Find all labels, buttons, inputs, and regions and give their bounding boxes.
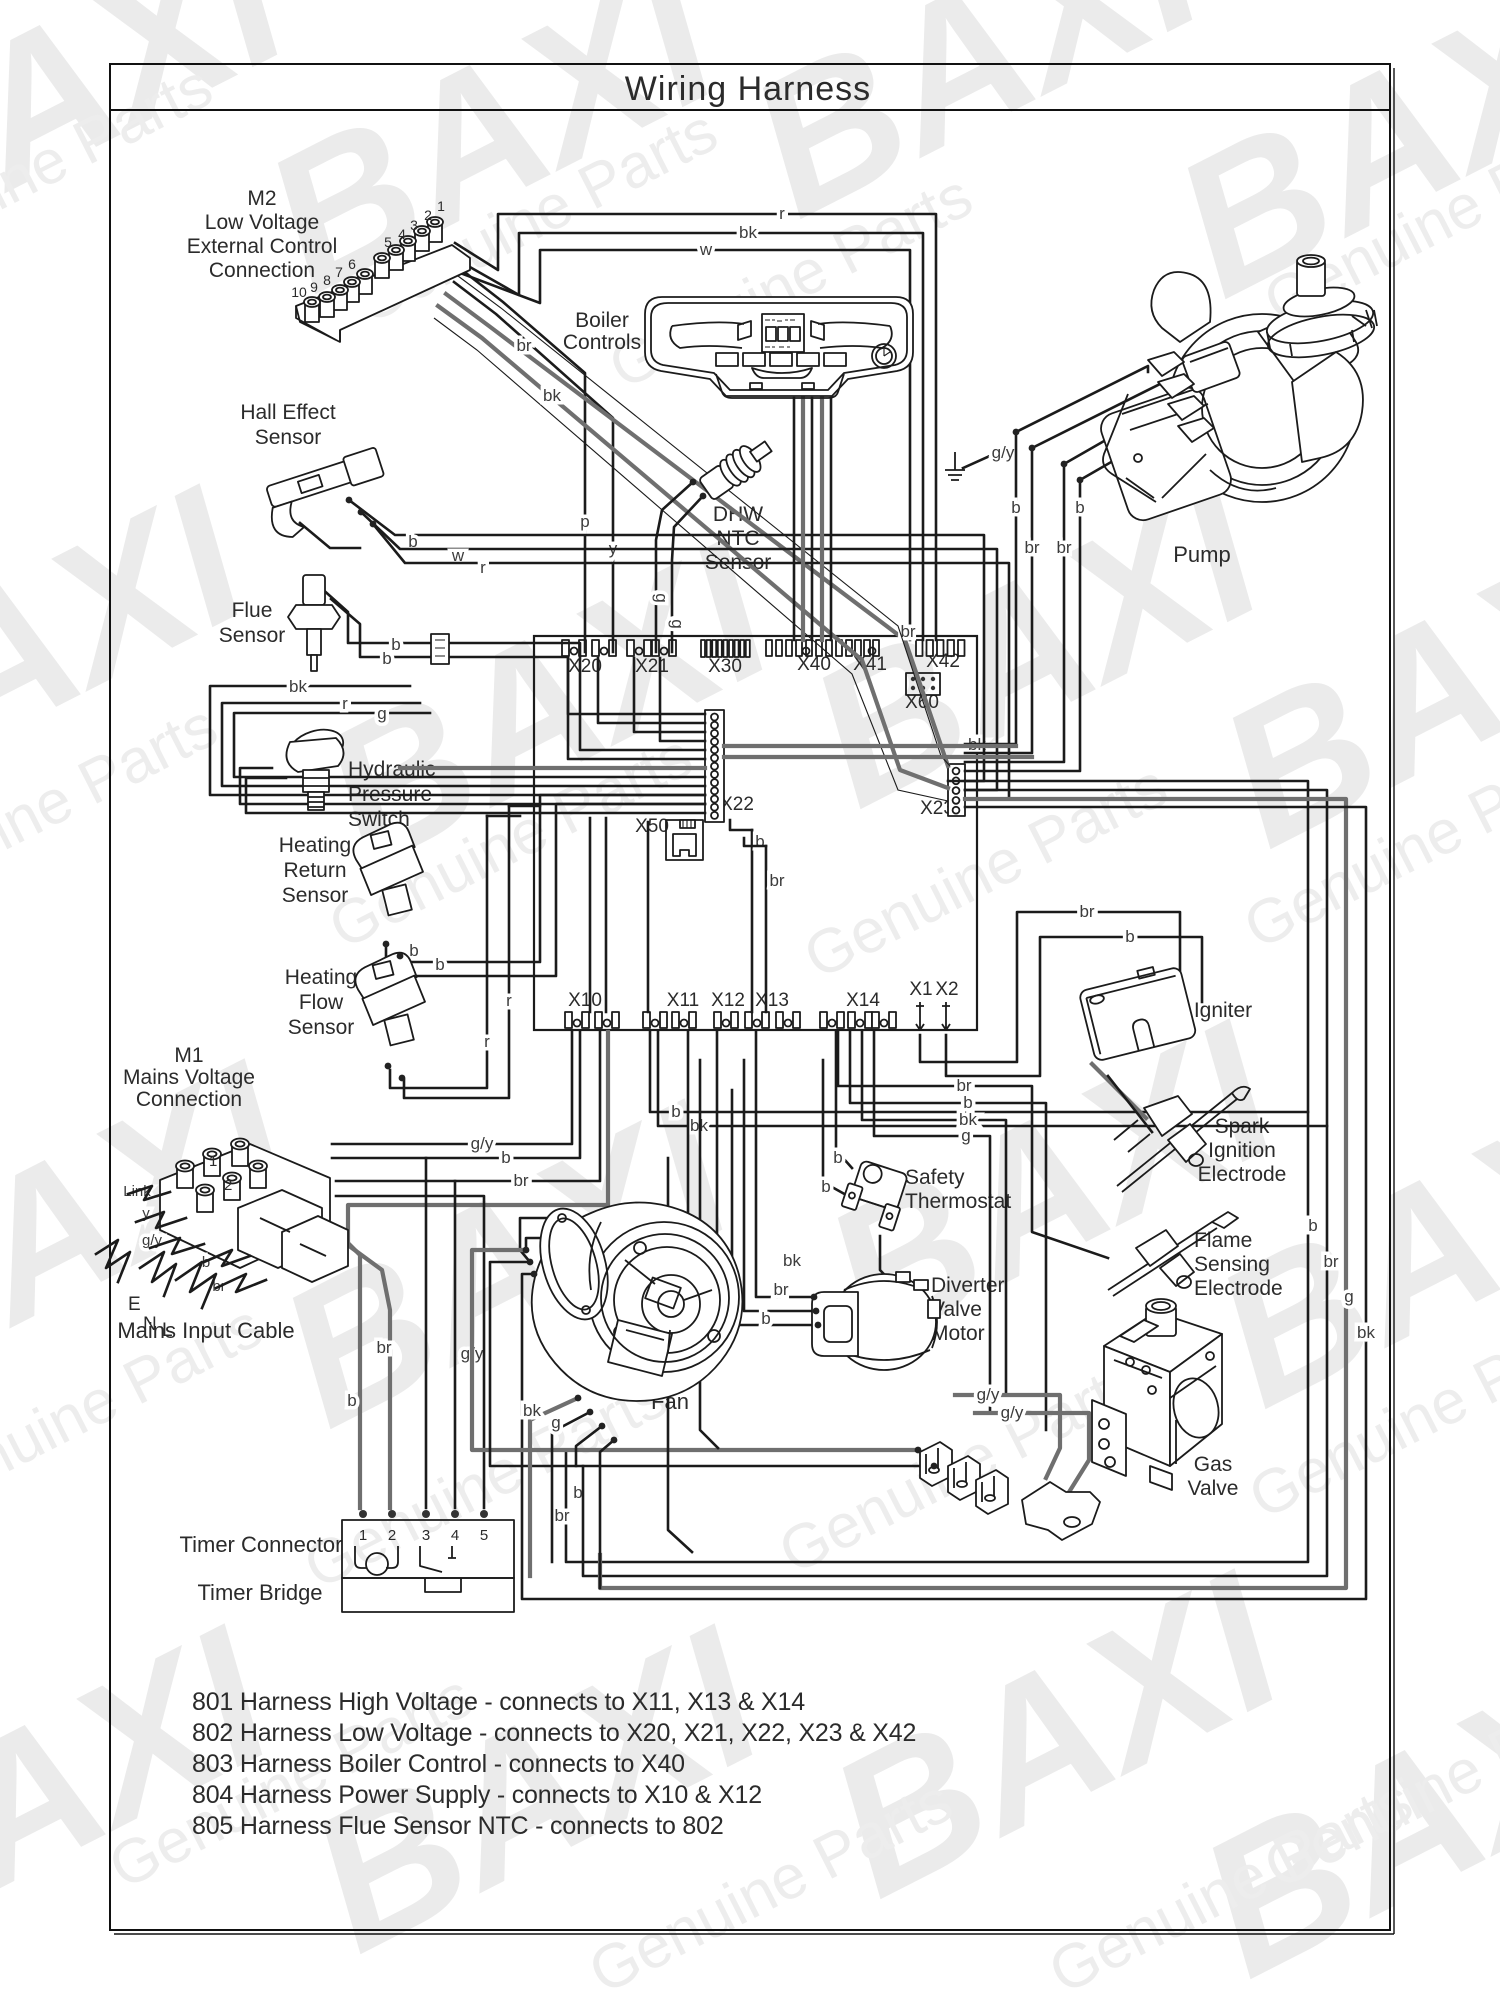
- svg-text:Sensor: Sensor: [288, 1016, 355, 1039]
- svg-text:b: b: [1125, 927, 1134, 946]
- svg-text:M2: M2: [247, 187, 276, 210]
- svg-text:p: p: [580, 512, 589, 531]
- svg-text:Flue: Flue: [232, 599, 273, 622]
- svg-text:br: br: [1056, 538, 1071, 557]
- svg-text:Sensor: Sensor: [219, 624, 286, 647]
- svg-text:Motor: Motor: [931, 1322, 985, 1345]
- svg-text:X12: X12: [711, 990, 745, 1011]
- svg-text:r: r: [779, 204, 785, 223]
- svg-text:2: 2: [424, 207, 432, 223]
- svg-text:803 Harness Boiler Control - c: 803 Harness Boiler Control - connects to…: [192, 1750, 685, 1778]
- svg-text:X11: X11: [667, 990, 699, 1011]
- svg-text:802 Harness Low Voltage - conn: 802 Harness Low Voltage - connects to X2…: [192, 1719, 916, 1747]
- svg-text:801 Harness High Voltage - con: 801 Harness High Voltage - connects to X…: [192, 1688, 805, 1716]
- svg-text:External Control: External Control: [187, 235, 338, 258]
- svg-text:X1: X1: [909, 979, 932, 1000]
- svg-text:Sensor: Sensor: [255, 426, 322, 449]
- svg-text:6: 6: [348, 256, 356, 272]
- svg-text:br: br: [1079, 902, 1094, 921]
- svg-text:X50: X50: [635, 816, 669, 837]
- svg-text:10: 10: [291, 284, 307, 300]
- svg-text:Heating: Heating: [285, 966, 357, 989]
- svg-text:Boiler: Boiler: [575, 309, 629, 332]
- svg-text:Electrode: Electrode: [1198, 1163, 1287, 1186]
- svg-text:br: br: [1323, 1252, 1338, 1271]
- svg-text:Return: Return: [283, 859, 346, 882]
- svg-text:N: N: [143, 1314, 157, 1335]
- svg-text:Valve: Valve: [1188, 1477, 1239, 1500]
- svg-text:Gas: Gas: [1194, 1453, 1233, 1476]
- svg-text:Pump: Pump: [1173, 542, 1230, 567]
- svg-text:Flame: Flame: [1194, 1229, 1252, 1252]
- svg-text:br: br: [516, 336, 531, 355]
- svg-text:Hall Effect: Hall Effect: [240, 401, 335, 424]
- svg-text:br: br: [1024, 538, 1039, 557]
- svg-text:br: br: [554, 1506, 569, 1525]
- svg-text:b: b: [1011, 498, 1020, 517]
- svg-text:Connection: Connection: [136, 1088, 242, 1111]
- svg-text:Heating: Heating: [279, 834, 351, 857]
- svg-text:b: b: [501, 1148, 510, 1167]
- svg-text:Connection: Connection: [209, 259, 315, 282]
- svg-text:1: 1: [437, 198, 445, 214]
- svg-text:br: br: [513, 1171, 528, 1190]
- svg-text:g: g: [668, 619, 687, 628]
- svg-text:X2: X2: [935, 979, 958, 1000]
- svg-text:b: b: [671, 1102, 680, 1121]
- svg-text:r: r: [484, 1032, 490, 1051]
- svg-text:X13: X13: [755, 990, 789, 1011]
- svg-text:7: 7: [335, 264, 343, 280]
- svg-text:805 Harness Flue Sensor NTC -: 805 Harness Flue Sensor NTC - connects t…: [192, 1812, 724, 1840]
- svg-text:bk: bk: [739, 223, 757, 242]
- svg-text:804 Harness Power Supply - con: 804 Harness Power Supply - connects to X…: [192, 1781, 762, 1809]
- svg-text:X30: X30: [708, 656, 742, 677]
- svg-text:Electrode: Electrode: [1194, 1277, 1283, 1300]
- svg-text:1: 1: [359, 1527, 367, 1544]
- svg-text:3: 3: [410, 217, 418, 233]
- svg-text:b: b: [755, 832, 764, 851]
- svg-text:X10: X10: [568, 990, 602, 1011]
- svg-text:bk: bk: [1357, 1323, 1375, 1342]
- svg-text:9: 9: [310, 279, 318, 295]
- svg-text:b: b: [382, 649, 391, 668]
- svg-text:g: g: [551, 1413, 560, 1432]
- svg-text:bk: bk: [289, 677, 307, 696]
- svg-text:g: g: [961, 1126, 970, 1145]
- svg-text:Sensor: Sensor: [282, 884, 349, 907]
- svg-text:bk: bk: [783, 1251, 801, 1270]
- svg-text:L: L: [162, 1320, 173, 1341]
- svg-text:X14: X14: [846, 990, 880, 1011]
- svg-text:b: b: [347, 1391, 356, 1410]
- svg-text:b: b: [391, 635, 400, 654]
- svg-text:g: g: [377, 704, 386, 723]
- svg-text:Timer Connector: Timer Connector: [179, 1532, 342, 1557]
- svg-text:b: b: [833, 1148, 842, 1167]
- svg-text:Low Voltage: Low Voltage: [205, 211, 319, 234]
- svg-text:b: b: [821, 1177, 830, 1196]
- svg-text:Flow: Flow: [299, 991, 344, 1014]
- svg-text:Timer Bridge: Timer Bridge: [197, 1580, 322, 1605]
- svg-text:5: 5: [480, 1527, 488, 1544]
- svg-text:E: E: [128, 1294, 141, 1315]
- svg-text:Mains Voltage: Mains Voltage: [123, 1066, 255, 1089]
- svg-text:Ignition: Ignition: [1208, 1139, 1276, 1162]
- svg-text:b: b: [761, 1309, 770, 1328]
- svg-text:br: br: [769, 871, 784, 890]
- svg-text:5: 5: [384, 234, 392, 250]
- svg-text:4: 4: [398, 226, 406, 242]
- svg-text:Thermostat: Thermostat: [905, 1190, 1011, 1213]
- svg-text:X21: X21: [635, 656, 669, 677]
- svg-text:bk: bk: [523, 1401, 541, 1420]
- svg-text:NTC: NTC: [716, 527, 759, 550]
- svg-text:2: 2: [388, 1527, 396, 1544]
- svg-text:br: br: [773, 1280, 788, 1299]
- svg-text:b: b: [435, 955, 444, 974]
- svg-text:Diverter: Diverter: [931, 1274, 1005, 1297]
- svg-text:g/y: g/y: [992, 443, 1015, 462]
- svg-text:M1: M1: [174, 1044, 203, 1067]
- svg-text:r: r: [342, 694, 348, 713]
- svg-text:r: r: [480, 558, 486, 577]
- svg-text:bk: bk: [543, 386, 561, 405]
- svg-text:g/y: g/y: [471, 1134, 494, 1153]
- svg-text:r: r: [506, 991, 512, 1010]
- svg-text:X22: X22: [720, 794, 754, 815]
- svg-text:g: g: [652, 593, 671, 602]
- svg-text:Sensing: Sensing: [1194, 1253, 1270, 1276]
- svg-text:b: b: [573, 1483, 582, 1502]
- svg-text:Safety: Safety: [905, 1166, 965, 1189]
- svg-text:b: b: [409, 941, 418, 960]
- svg-text:br: br: [376, 1338, 391, 1357]
- svg-text:3: 3: [422, 1527, 430, 1544]
- svg-text:4: 4: [451, 1527, 459, 1544]
- svg-text:w: w: [699, 240, 713, 259]
- svg-text:b: b: [1308, 1216, 1317, 1235]
- svg-text:Controls: Controls: [563, 331, 641, 354]
- svg-text:b: b: [1075, 498, 1084, 517]
- svg-text:g/y: g/y: [977, 1385, 1000, 1404]
- svg-text:X40: X40: [797, 654, 831, 675]
- svg-text:Wiring Harness: Wiring Harness: [625, 70, 871, 108]
- svg-text:8: 8: [323, 272, 331, 288]
- svg-text:g/y: g/y: [1001, 1403, 1024, 1422]
- svg-text:2: 2: [224, 1177, 232, 1194]
- svg-text:1: 1: [209, 1153, 217, 1170]
- svg-text:br: br: [900, 622, 915, 641]
- svg-text:g: g: [1344, 1287, 1353, 1306]
